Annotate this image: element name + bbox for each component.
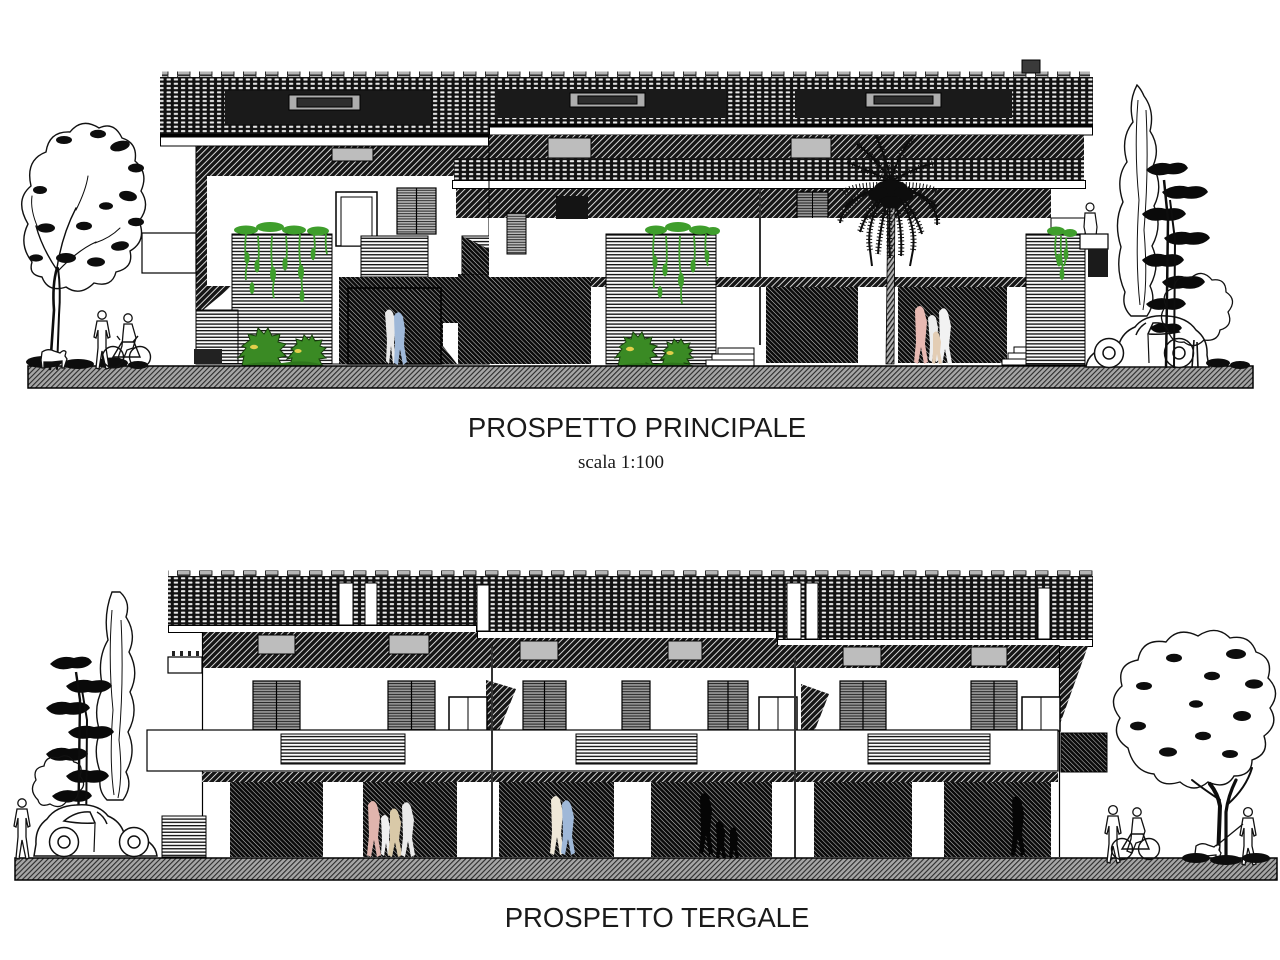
svg-text:scala 1:100: scala 1:100	[578, 452, 664, 473]
svg-text:PROSPETTO TERGALE: PROSPETTO TERGALE	[505, 902, 810, 933]
svg-text:PROSPETTO PRINCIPALE: PROSPETTO PRINCIPALE	[468, 412, 806, 443]
